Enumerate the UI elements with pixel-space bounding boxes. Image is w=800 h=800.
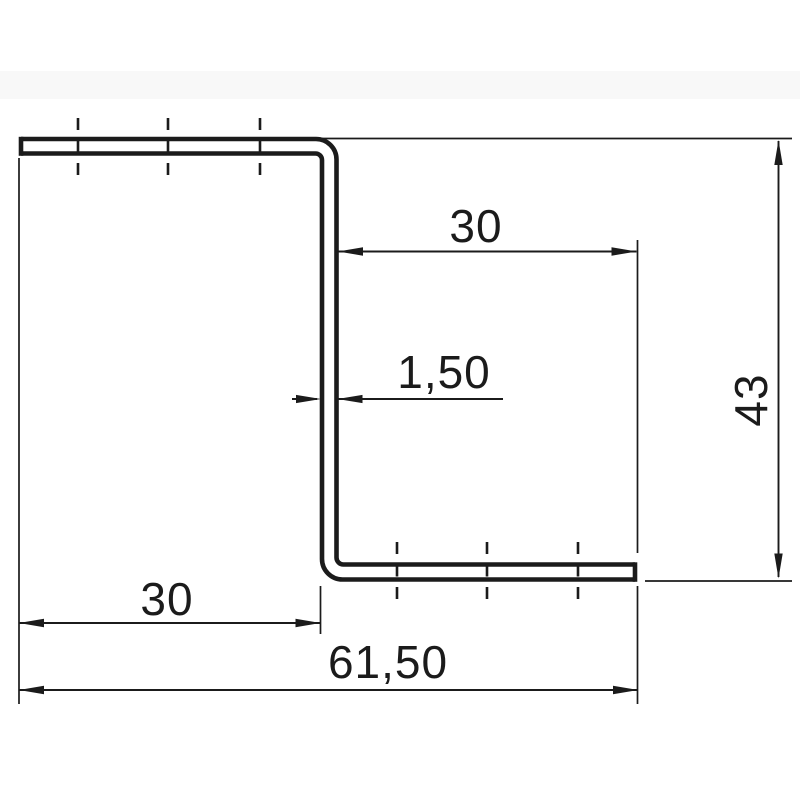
- arrowhead-left-icon: [338, 395, 363, 403]
- arrowhead-up-icon: [774, 140, 782, 165]
- dimension-label-right-flange: 30: [449, 200, 502, 252]
- arrowhead-left-icon: [338, 247, 363, 255]
- scan-noise-band: [0, 71, 800, 99]
- arrowhead-right-icon: [612, 247, 637, 255]
- dimension-label-thickness: 1,50: [397, 346, 491, 398]
- z-profile-outline: [21, 137, 635, 582]
- profile-contour-outer: [21, 139, 635, 565]
- profile-contour-inner: [21, 154, 635, 580]
- arrowhead-left-icon: [19, 619, 44, 627]
- arrowhead-left-icon: [19, 686, 44, 694]
- arrowhead-right-icon: [296, 619, 321, 627]
- bend-zone-marks: [78, 118, 578, 608]
- technical-drawing-canvas: 30 1,50 43 30: [0, 0, 800, 800]
- dimension-label-height: 43: [725, 373, 777, 426]
- arrowhead-down-icon: [774, 554, 782, 579]
- arrowhead-right-icon: [296, 395, 321, 403]
- dimension-left-flange: 30: [19, 573, 321, 634]
- arrowhead-right-icon: [613, 686, 638, 694]
- dimension-label-left-flange: 30: [140, 573, 193, 625]
- dimension-label-overall-width: 61,50: [328, 636, 448, 688]
- dimension-height: 43: [318, 139, 792, 582]
- technical-drawing-page: 30 1,50 43 30: [0, 0, 800, 800]
